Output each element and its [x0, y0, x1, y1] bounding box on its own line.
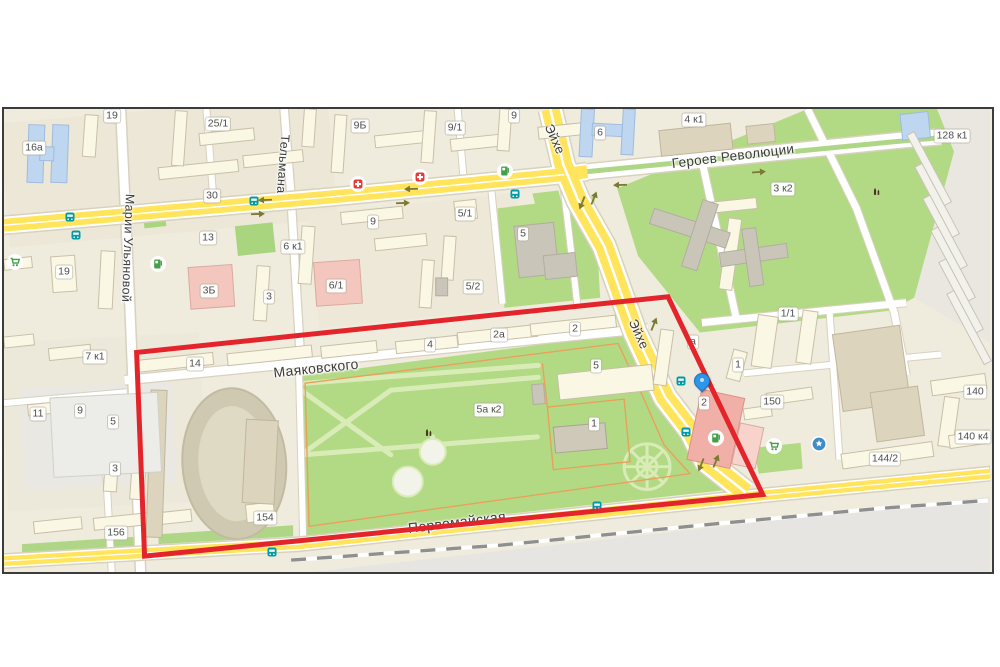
map-canvas[interactable]: Марии УльяновойТельманаЭйхеЭйхеГероев Ре…: [2, 107, 994, 574]
map-pin[interactable]: [694, 373, 710, 389]
map-pin-dot: [700, 378, 704, 382]
map-base-art: [4, 109, 992, 572]
page: Марии УльяновойТельманаЭйхеЭйхеГероев Ре…: [0, 0, 1000, 667]
